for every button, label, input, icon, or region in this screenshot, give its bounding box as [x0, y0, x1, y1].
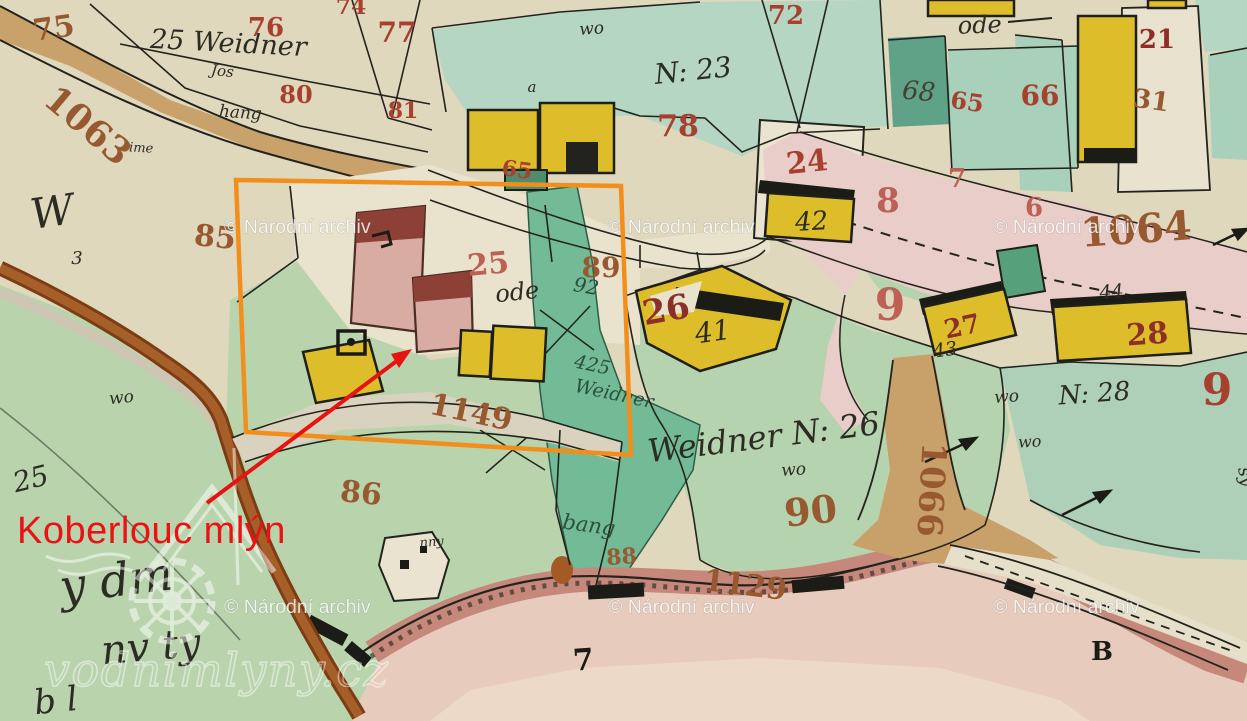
site-watermark-text: vodnimlyny.cz — [44, 643, 389, 697]
map-label: 28 — [1125, 316, 1169, 354]
map-label: 7 — [948, 164, 966, 194]
map-image: 7525 WeidnerJoshangime10637674778081woaN… — [0, 0, 1247, 721]
map-label: ode — [957, 10, 1002, 40]
map-label: 7 — [572, 642, 595, 678]
map-label: 43 — [931, 337, 959, 362]
map-label: 8 — [876, 181, 900, 221]
map-label: Jos — [207, 61, 235, 82]
weir-mark — [551, 556, 573, 584]
map-label: 72 — [768, 1, 804, 31]
map-label: 9 — [875, 280, 906, 331]
map-label: 75 — [31, 8, 77, 48]
archive-watermark-text: © Národní archiv — [608, 596, 755, 618]
map-label: wo — [579, 18, 605, 40]
map-label: 86 — [338, 474, 383, 513]
archive-watermark-text: © Národní archiv — [993, 216, 1140, 238]
map-label: 68 — [901, 76, 937, 109]
map-label: 25 — [466, 245, 511, 284]
map-label: 66 — [1021, 79, 1060, 112]
map-label: wo — [781, 459, 807, 481]
map-label: hang — [218, 102, 262, 125]
map-label: 1066 — [909, 441, 954, 538]
map-label: 92 — [572, 272, 601, 300]
map-label: 9 — [1202, 365, 1233, 416]
archive-watermark-text: © Národní archiv — [608, 216, 755, 238]
map-label: 81 — [388, 98, 419, 124]
map-label: 3 — [71, 248, 82, 269]
archive-watermark-text: © Národní archiv — [224, 596, 371, 618]
map-label: 26 — [639, 286, 693, 334]
map-label: 65 — [500, 155, 534, 185]
building-yellow — [459, 330, 492, 377]
archive-watermark-text: © Národní archiv — [993, 596, 1140, 618]
map-label: 41 — [692, 313, 733, 351]
map-label: B — [1091, 637, 1113, 667]
building-yellow — [1078, 16, 1136, 162]
map-label: 24 — [784, 143, 829, 182]
building-yellow — [491, 326, 547, 382]
cadastral-map-screenshot: 7525 WeidnerJoshangime10637674778081woaN… — [0, 0, 1247, 721]
map-label: wo — [994, 386, 1020, 408]
map-label: 90 — [782, 485, 839, 535]
map-label: 74 — [336, 0, 367, 20]
building-yellow — [303, 340, 383, 403]
map-label: 65 — [949, 85, 986, 118]
map-label: wo — [1018, 431, 1042, 451]
map-label: 88 — [605, 543, 637, 571]
map-label: 42 — [793, 206, 829, 238]
map-label: a — [528, 78, 537, 96]
map-label: 80 — [279, 80, 312, 109]
map-label: ode — [494, 276, 541, 308]
building-28 — [1053, 299, 1191, 361]
archive-watermark-text: © Národní archiv — [224, 216, 371, 238]
map-label: 44 — [1097, 280, 1124, 304]
map-label: 77 — [378, 16, 417, 49]
map-label: wo — [108, 387, 135, 409]
map-label: 76 — [248, 13, 284, 43]
map-label: nny — [419, 534, 445, 551]
map-label: N: 28 — [1057, 377, 1132, 412]
map-label: 78 — [657, 109, 699, 144]
map-label: 21 — [1139, 25, 1175, 55]
map-label: 31 — [1131, 84, 1171, 119]
mill-annotation-label: Koberlouc mlýn — [17, 510, 286, 552]
